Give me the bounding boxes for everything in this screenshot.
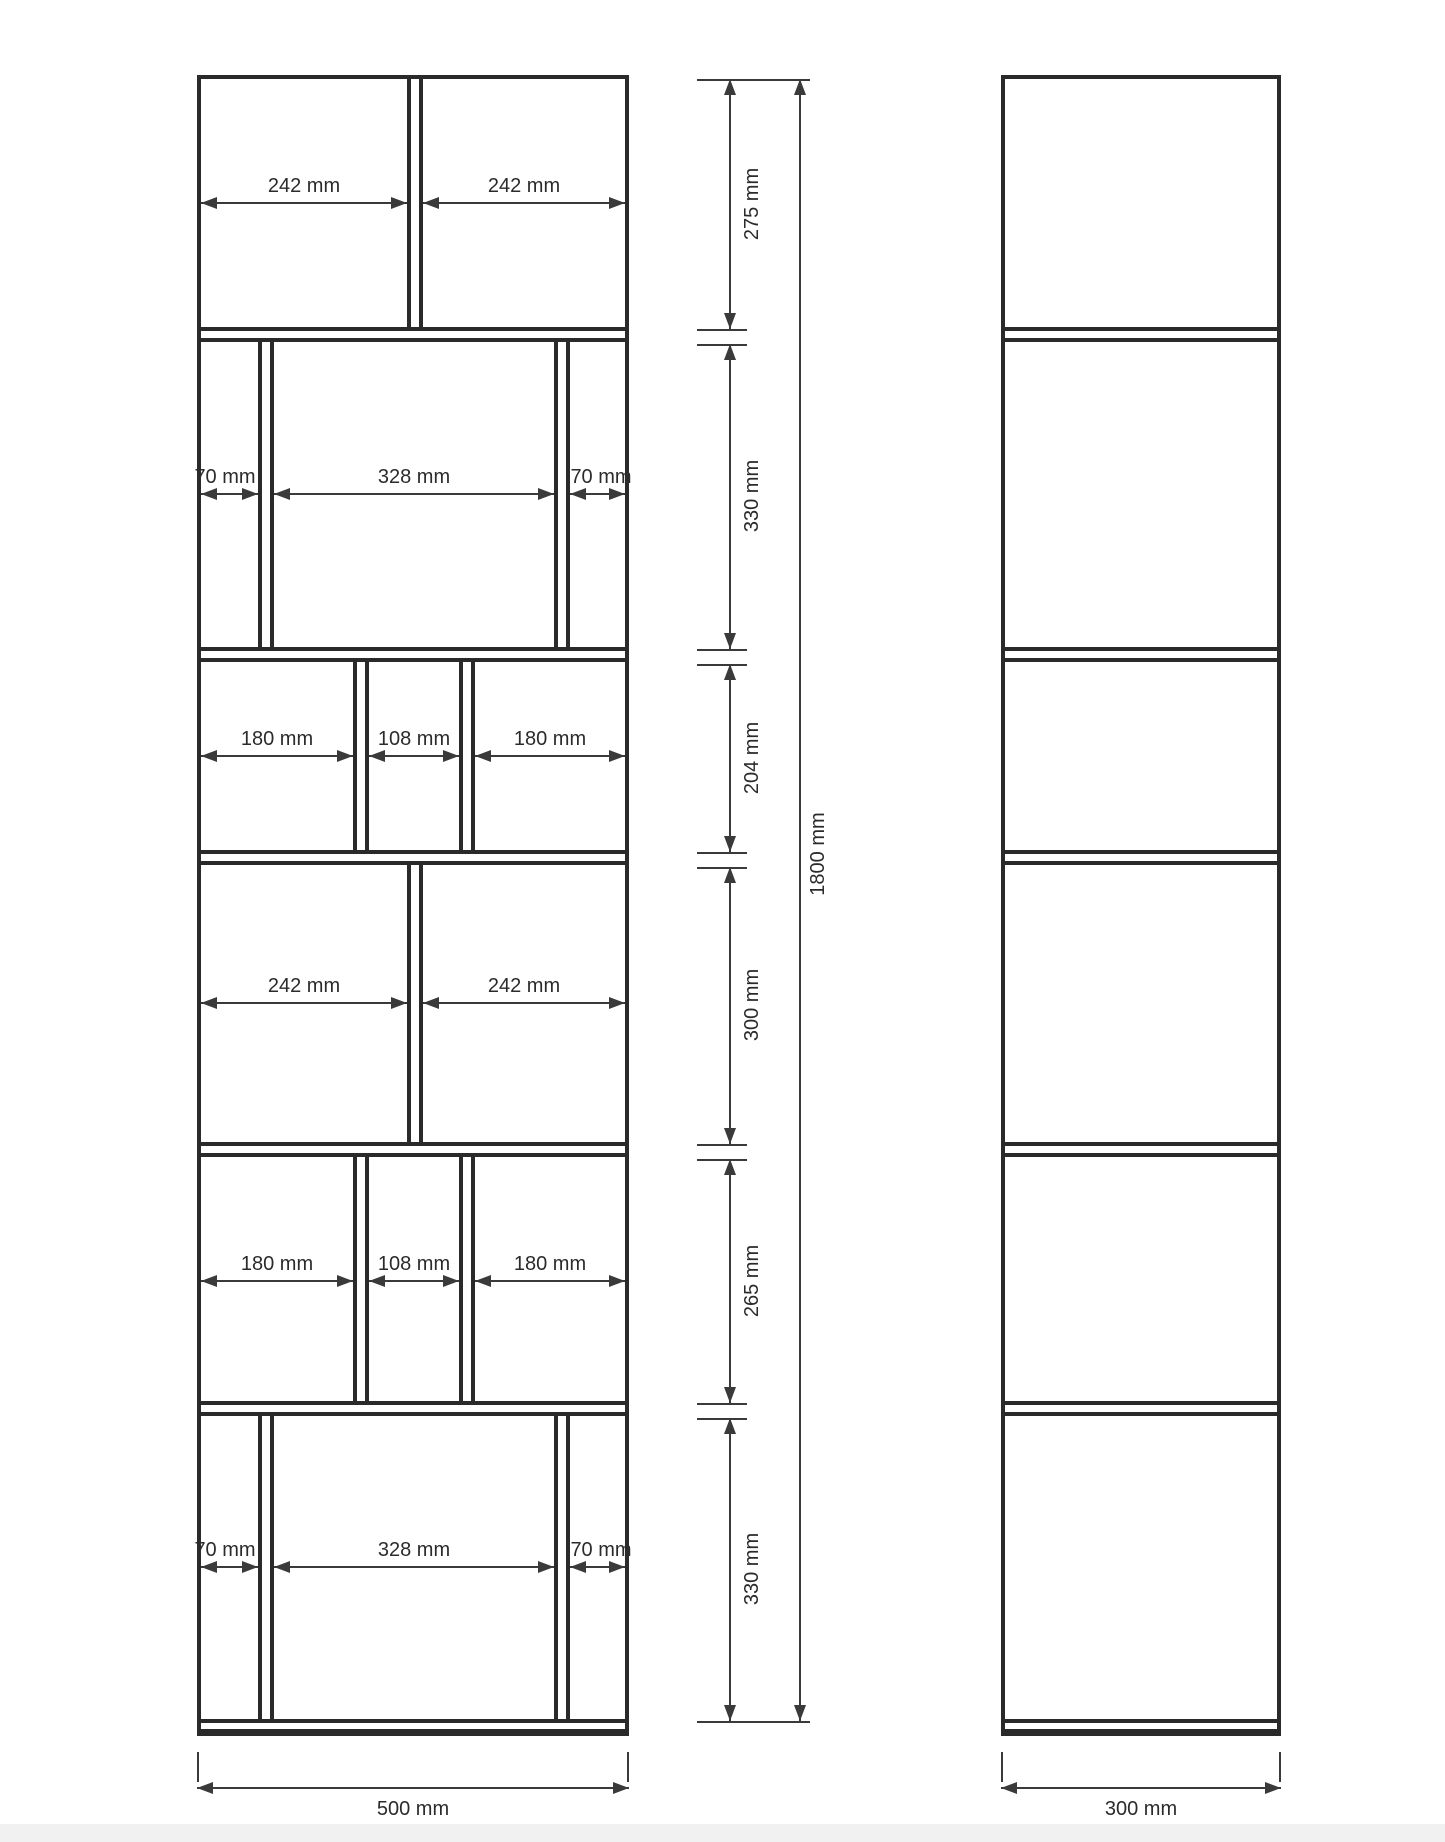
side-base-top-line xyxy=(1001,1719,1281,1723)
width-dimension-label: 242 mm xyxy=(268,174,340,198)
height-dimension-arrow xyxy=(729,1418,731,1721)
extension-tick xyxy=(1279,1752,1281,1782)
height-dimension-arrow xyxy=(729,867,731,1144)
height-dimension-label: 265 mm xyxy=(740,1245,764,1317)
side-left-wall xyxy=(1001,75,1005,1736)
divider-line xyxy=(407,79,423,327)
width-dimension-label: 108 mm xyxy=(378,727,450,751)
width-dimension-label: 108 mm xyxy=(378,1252,450,1276)
width-dimension-arrow xyxy=(475,755,625,757)
height-dimension-label: 300 mm xyxy=(740,969,764,1041)
divider-line xyxy=(258,342,274,647)
width-dimension-label: 70 mm xyxy=(194,1538,255,1562)
width-dimension-label: 242 mm xyxy=(488,174,560,198)
width-dimension-label: 328 mm xyxy=(378,1538,450,1562)
overall-width-arrow xyxy=(197,1787,629,1789)
width-dimension-arrow xyxy=(201,755,353,757)
width-dimension-arrow xyxy=(274,493,554,495)
overall-height-arrow xyxy=(799,79,801,1721)
technical-drawing-canvas: 242 mm 242 mm 70 mm 328 mm 70 mm 180 mm … xyxy=(0,0,1445,1842)
height-dimension-label: 330 mm xyxy=(740,1533,764,1605)
divider-line xyxy=(353,662,369,850)
extension-tick xyxy=(697,1721,810,1723)
width-dimension-label: 242 mm xyxy=(268,974,340,998)
front-base-top-line xyxy=(197,1719,629,1723)
divider-line xyxy=(258,1416,274,1719)
width-dimension-label: 180 mm xyxy=(241,1252,313,1276)
shelf-line xyxy=(201,850,625,865)
width-dimension-arrow xyxy=(201,1002,407,1004)
overall-height-label: 1800 mm xyxy=(806,812,830,895)
shelf-line xyxy=(201,1142,625,1157)
extension-tick xyxy=(697,852,747,854)
divider-line xyxy=(459,1157,475,1401)
shelf-line xyxy=(1005,327,1277,342)
side-base-bottom-line xyxy=(1001,1729,1281,1736)
height-dimension-label: 204 mm xyxy=(740,722,764,794)
height-dimension-arrow xyxy=(729,1159,731,1403)
extension-tick xyxy=(697,867,747,869)
shelf-line xyxy=(201,1401,625,1416)
divider-line xyxy=(554,342,570,647)
width-dimension-arrow xyxy=(570,1566,625,1568)
extension-tick xyxy=(697,1159,747,1161)
width-dimension-label: 70 mm xyxy=(570,465,631,489)
height-dimension-arrow xyxy=(729,79,731,329)
front-base-bottom-line xyxy=(197,1729,629,1736)
shelf-line xyxy=(1005,647,1277,662)
extension-tick xyxy=(197,1752,199,1782)
width-dimension-arrow xyxy=(369,1280,459,1282)
shelf-line xyxy=(201,647,625,662)
divider-line xyxy=(353,1157,369,1401)
side-right-wall xyxy=(1277,75,1281,1736)
extension-tick xyxy=(697,664,747,666)
width-dimension-label: 242 mm xyxy=(488,974,560,998)
width-dimension-label: 70 mm xyxy=(570,1538,631,1562)
width-dimension-label: 70 mm xyxy=(194,465,255,489)
extension-tick xyxy=(697,344,747,346)
shelf-line xyxy=(1005,1401,1277,1416)
width-dimension-label: 180 mm xyxy=(514,727,586,751)
shelf-line xyxy=(1005,1142,1277,1157)
depth-dimension-arrow xyxy=(1001,1787,1281,1789)
front-left-wall xyxy=(197,75,201,1736)
extension-tick xyxy=(697,329,747,331)
shelf-line xyxy=(1005,850,1277,865)
divider-line xyxy=(407,865,423,1142)
footer-band xyxy=(0,1824,1445,1842)
width-dimension-label: 328 mm xyxy=(378,465,450,489)
width-dimension-arrow xyxy=(423,1002,625,1004)
width-dimension-label: 180 mm xyxy=(241,727,313,751)
depth-dimension-label: 300 mm xyxy=(1105,1797,1177,1821)
width-dimension-arrow xyxy=(369,755,459,757)
height-dimension-arrow xyxy=(729,344,731,649)
divider-line xyxy=(554,1416,570,1719)
extension-tick xyxy=(627,1752,629,1782)
extension-tick xyxy=(697,649,747,651)
divider-line xyxy=(459,662,475,850)
height-dimension-label: 275 mm xyxy=(740,168,764,240)
extension-tick xyxy=(1001,1752,1003,1782)
width-dimension-arrow xyxy=(201,202,407,204)
width-dimension-arrow xyxy=(201,493,258,495)
shelf-line xyxy=(201,327,625,342)
width-dimension-arrow xyxy=(274,1566,554,1568)
width-dimension-arrow xyxy=(201,1566,258,1568)
width-dimension-arrow xyxy=(475,1280,625,1282)
extension-tick xyxy=(697,1403,747,1405)
height-dimension-label: 330 mm xyxy=(740,460,764,532)
side-top-edge xyxy=(1001,75,1281,79)
extension-tick xyxy=(697,1418,747,1420)
width-dimension-arrow xyxy=(570,493,625,495)
extension-tick xyxy=(697,1144,747,1146)
height-dimension-arrow xyxy=(729,664,731,852)
width-dimension-arrow xyxy=(423,202,625,204)
overall-width-label: 500 mm xyxy=(377,1797,449,1821)
width-dimension-label: 180 mm xyxy=(514,1252,586,1276)
front-right-wall xyxy=(625,75,629,1736)
width-dimension-arrow xyxy=(201,1280,353,1282)
